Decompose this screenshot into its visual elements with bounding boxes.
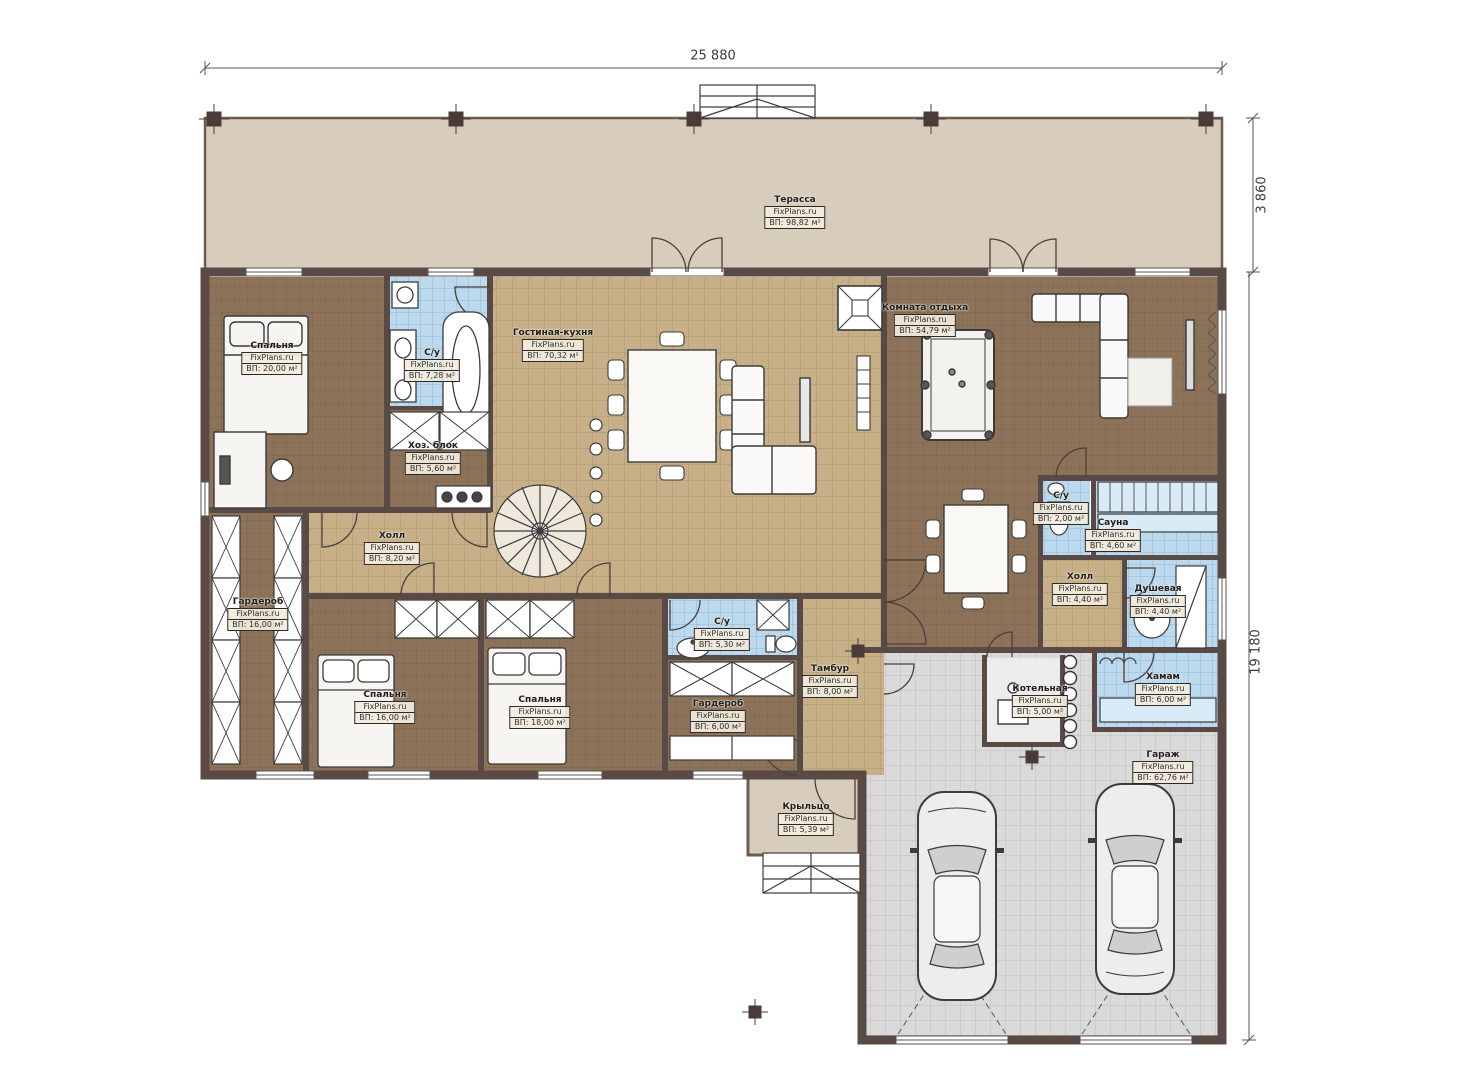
fireplace	[838, 286, 882, 330]
pillow	[493, 653, 525, 675]
sink	[1048, 483, 1064, 495]
floor-plan-page: 25 880 3 860 19 180 Терасса FixPlans.ru …	[0, 0, 1473, 1080]
monitor	[220, 456, 230, 484]
toilet	[776, 636, 796, 652]
floor-plan-canvas	[0, 0, 1473, 1080]
porch-floor	[748, 775, 862, 855]
bedroom3-furniture	[486, 600, 574, 764]
dining-table	[628, 350, 716, 462]
pillow	[268, 322, 302, 346]
bathtub	[443, 312, 489, 428]
vestibule-floor	[802, 598, 884, 775]
spiral-stair	[494, 485, 586, 577]
pillow	[358, 660, 389, 682]
pillow	[529, 653, 561, 675]
sauna-furniture	[1098, 482, 1218, 532]
rug	[1128, 358, 1172, 406]
boiler-unit	[998, 700, 1028, 724]
wall-shelf	[857, 356, 870, 430]
car-1	[910, 792, 1004, 1000]
hammam-bench	[1100, 698, 1216, 722]
toilet-tank	[766, 636, 775, 652]
tv-stand	[800, 378, 810, 442]
chair	[271, 459, 293, 481]
vanity	[390, 330, 416, 402]
washing-machine	[392, 282, 418, 308]
terrace-area	[199, 85, 1222, 272]
toilet	[1050, 511, 1068, 535]
toilet-tank	[1048, 502, 1070, 511]
dimension-terrace-depth: 3 860	[1255, 176, 1270, 213]
pillow	[230, 322, 264, 346]
pillow	[323, 660, 354, 682]
porch-steps	[763, 853, 860, 893]
terrace-steps	[700, 85, 815, 118]
dimension-height: 19 180	[1249, 629, 1264, 675]
billiard-table	[921, 330, 995, 440]
hall2-floor	[1040, 560, 1122, 650]
tv	[1186, 320, 1194, 390]
car-2	[1088, 784, 1182, 994]
dimension-width: 25 880	[690, 49, 736, 64]
